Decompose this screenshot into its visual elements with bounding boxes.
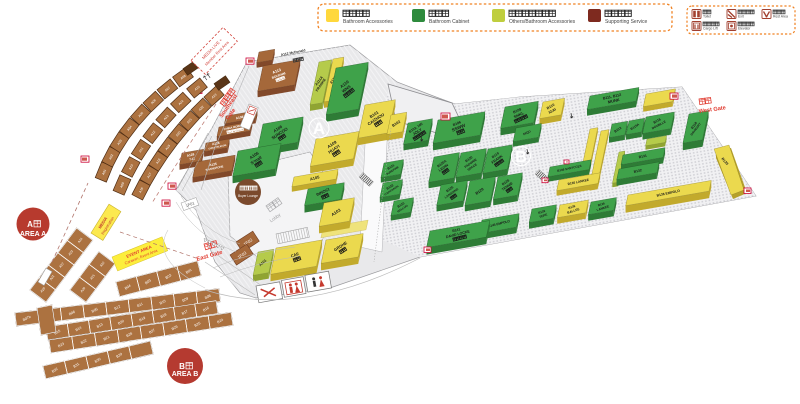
svg-text:Supporting Service: Supporting Service [605, 19, 647, 25]
svg-text:B: B [179, 362, 185, 371]
svg-text:AREA A: AREA A [20, 231, 46, 238]
svg-text:Buyer Lounge: Buyer Lounge [238, 194, 258, 198]
svg-text:Bathroom Cabinet: Bathroom Cabinet [429, 19, 470, 25]
svg-text:Rest Area: Rest Area [773, 15, 788, 19]
svg-text:Exit: Exit [738, 15, 744, 19]
svg-text:B: B [515, 149, 527, 166]
svg-text:Others/Bathroom Accessories: Others/Bathroom Accessories [509, 19, 576, 25]
svg-text:Bathroom Accessories: Bathroom Accessories [343, 19, 393, 25]
svg-text:Cargo Lift: Cargo Lift [703, 27, 718, 31]
svg-text:AREA B: AREA B [172, 371, 199, 378]
svg-text:A: A [27, 220, 33, 229]
svg-text:Toilet: Toilet [703, 15, 711, 19]
svg-text:A: A [313, 119, 325, 138]
svg-text:Elevator: Elevator [738, 27, 751, 31]
